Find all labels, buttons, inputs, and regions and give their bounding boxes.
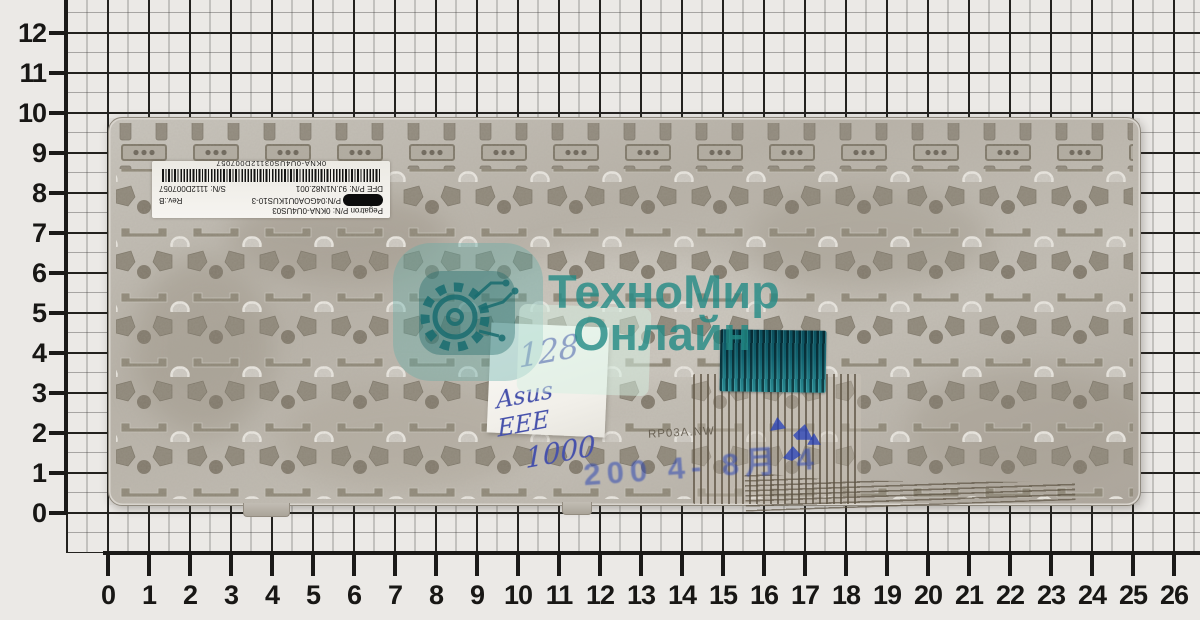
tick-mark (639, 553, 643, 576)
tick-label: 8 (12, 178, 46, 209)
tick-mark (1090, 553, 1094, 576)
tick-label: 10 (497, 580, 539, 611)
tick-label: 18 (825, 580, 867, 611)
tick-mark (598, 553, 602, 576)
tick-mark (926, 553, 930, 576)
tick-label: 20 (907, 580, 949, 611)
tick-mark (229, 553, 233, 576)
tick-label: 1 (128, 580, 170, 611)
label-line-2: P/N:04GOA0U1KUS10-3 Rev.:B (159, 193, 383, 205)
tick-label: 14 (661, 580, 703, 611)
tick-label: 25 (1112, 580, 1154, 611)
tick-mark (270, 553, 274, 576)
tick-label: 12 (12, 18, 46, 49)
tick-label: 26 (1153, 580, 1195, 611)
left-ruler-axis (64, 0, 68, 514)
tick-label: 9 (12, 138, 46, 169)
handwritten-note: 128 Asus EEE 1000 (487, 322, 610, 437)
tick-label: 9 (456, 580, 498, 611)
tick-label: 15 (702, 580, 744, 611)
tick-label: 7 (12, 218, 46, 249)
tick-label: 6 (333, 580, 375, 611)
tick-label: 0 (12, 498, 46, 529)
tick-mark (434, 553, 438, 576)
tick-label: 7 (374, 580, 416, 611)
tick-label: 11 (538, 580, 580, 611)
tick-label: 13 (620, 580, 662, 611)
tick-label: 5 (12, 298, 46, 329)
tick-label: 19 (866, 580, 908, 611)
tick-mark (762, 553, 766, 576)
tick-mark (557, 553, 561, 576)
bottom-ruler-axis (103, 551, 1200, 555)
tick-label: 10 (12, 98, 46, 129)
label-line-3: DFE P/N: 9J.N1N82.001 S/N: 1112D007057 (159, 183, 383, 193)
marker-blackout (343, 194, 383, 206)
product-photo-keyboard-backplate: 12 11 10 9 8 7 (0, 0, 1200, 620)
tick-label: 5 (292, 580, 334, 611)
tick-label: 4 (251, 580, 293, 611)
tick-mark (844, 553, 848, 576)
note-line-1: 128 (519, 322, 600, 376)
tick-mark (721, 553, 725, 576)
tick-mark (803, 553, 807, 576)
tick-label: 2 (169, 580, 211, 611)
tick-label: 12 (579, 580, 621, 611)
tick-mark (106, 553, 110, 576)
tick-mark (1172, 553, 1176, 576)
tick-mark (1049, 553, 1053, 576)
tick-mark (393, 553, 397, 576)
tick-mark (1131, 553, 1135, 576)
tick-label: 24 (1071, 580, 1113, 611)
tick-label: 8 (415, 580, 457, 611)
tick-mark (188, 553, 192, 576)
tick-mark (1008, 553, 1012, 576)
tick-label: 4 (12, 338, 46, 369)
tick-mark (352, 553, 356, 576)
barcode-text: 0KNA-0U4US03112D007057 (159, 158, 383, 168)
tick-label: 3 (210, 580, 252, 611)
plate-mounting-tab (243, 503, 290, 517)
tick-label: 22 (989, 580, 1031, 611)
tick-mark (475, 553, 479, 576)
tick-label: 16 (743, 580, 785, 611)
tick-label: 21 (948, 580, 990, 611)
tick-label: 6 (12, 258, 46, 289)
tick-mark (311, 553, 315, 576)
tick-mark (967, 553, 971, 576)
tick-label: 0 (87, 580, 129, 611)
tick-mark (516, 553, 520, 576)
tick-label: 11 (12, 58, 46, 89)
label-line-1: Pegatron P/N: 0KNA-0U4US03 (159, 205, 383, 215)
tick-label: 2 (12, 418, 46, 449)
tick-mark (680, 553, 684, 576)
tick-label: 1 (12, 458, 46, 489)
tick-label: 17 (784, 580, 826, 611)
tick-mark (147, 553, 151, 576)
ribbon-cable (720, 329, 827, 392)
tick-label: 23 (1030, 580, 1072, 611)
tick-label: 3 (12, 378, 46, 409)
plate-mounting-tab (562, 502, 592, 515)
tick-mark (885, 553, 889, 576)
barcode (162, 169, 379, 182)
part-label: Pegatron P/N: 0KNA-0U4US03 P/N:04GOA0U1K… (152, 161, 390, 218)
